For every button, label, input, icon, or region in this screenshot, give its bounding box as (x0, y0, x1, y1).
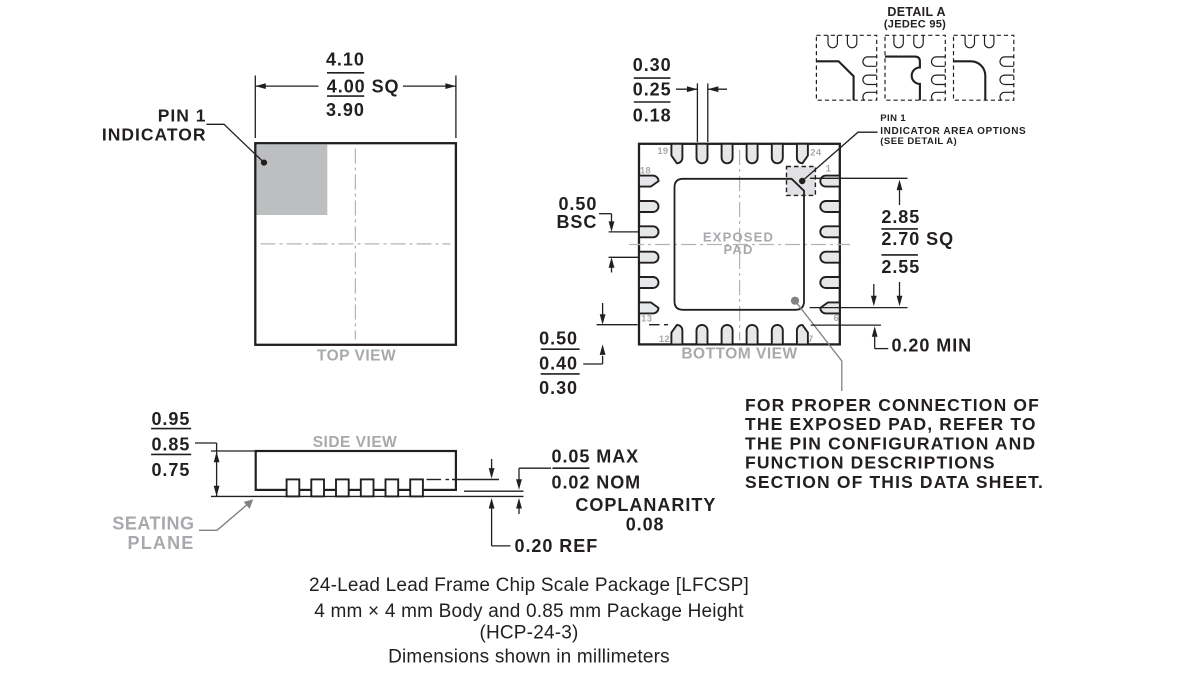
svg-text:3.90: 3.90 (326, 100, 365, 120)
svg-text:18: 18 (640, 165, 651, 176)
svg-text:PIN 1: PIN 1 (880, 113, 906, 124)
svg-text:2.55: 2.55 (881, 257, 920, 277)
svg-text:FOR PROPER CONNECTION OF: FOR PROPER CONNECTION OF (745, 395, 1040, 415)
svg-text:0.20 REF: 0.20 REF (515, 536, 599, 556)
svg-text:24: 24 (810, 148, 822, 159)
svg-text:0.20 MIN: 0.20 MIN (892, 336, 973, 356)
svg-text:THE EXPOSED PAD, REFER TO: THE EXPOSED PAD, REFER TO (745, 414, 1037, 434)
svg-text:SECTION OF THIS DATA SHEET.: SECTION OF THIS DATA SHEET. (745, 472, 1044, 492)
svg-text:BOTTOM VIEW: BOTTOM VIEW (681, 345, 797, 362)
svg-text:6: 6 (834, 313, 840, 324)
svg-text:COPLANARITY: COPLANARITY (575, 495, 716, 515)
svg-text:PAD: PAD (723, 242, 753, 257)
svg-text:0.75: 0.75 (151, 460, 190, 480)
svg-text:0.08: 0.08 (626, 515, 665, 535)
svg-text:0.30: 0.30 (633, 55, 672, 75)
svg-text:0.05 MAX: 0.05 MAX (552, 446, 640, 466)
svg-text:INDICATOR: INDICATOR (102, 125, 207, 145)
svg-text:4.00 SQ: 4.00 SQ (327, 77, 400, 97)
svg-text:0.02 NOM: 0.02 NOM (552, 472, 642, 492)
svg-text:13: 13 (641, 314, 652, 325)
svg-text:7: 7 (808, 334, 814, 345)
svg-text:19: 19 (657, 146, 668, 157)
svg-text:4.10: 4.10 (326, 50, 365, 70)
svg-text:0.85: 0.85 (151, 435, 190, 455)
svg-text:0.18: 0.18 (633, 105, 672, 125)
svg-text:12: 12 (659, 334, 670, 345)
svg-text:2.70 SQ: 2.70 SQ (881, 229, 954, 249)
svg-text:DETAIL A: DETAIL A (887, 5, 945, 19)
svg-text:Dimensions shown in millimeter: Dimensions shown in millimeters (388, 646, 670, 667)
svg-text:SEATING: SEATING (112, 514, 194, 534)
svg-text:2.85: 2.85 (881, 207, 920, 227)
svg-text:PLANE: PLANE (127, 533, 194, 553)
svg-text:0.40: 0.40 (539, 353, 578, 373)
svg-text:(HCP-24-3): (HCP-24-3) (479, 623, 578, 644)
svg-text:1: 1 (826, 164, 832, 175)
svg-text:24-Lead Lead Frame Chip Scale: 24-Lead Lead Frame Chip Scale Package [L… (309, 575, 749, 596)
svg-text:PIN 1: PIN 1 (158, 105, 207, 125)
svg-text:(JEDEC 95): (JEDEC 95) (884, 18, 946, 30)
svg-text:0.25: 0.25 (633, 80, 672, 100)
svg-text:0.50: 0.50 (539, 329, 578, 349)
svg-text:THE PIN CONFIGURATION AND: THE PIN CONFIGURATION AND (745, 433, 1036, 453)
svg-text:0.95: 0.95 (151, 409, 190, 429)
svg-text:(SEE DETAIL A): (SEE DETAIL A) (880, 136, 957, 147)
svg-text:0.30: 0.30 (539, 378, 578, 398)
svg-text:FUNCTION DESCRIPTIONS: FUNCTION DESCRIPTIONS (745, 453, 996, 473)
svg-text:SIDE VIEW: SIDE VIEW (313, 434, 398, 451)
svg-text:4 mm × 4 mm Body and 0.85 mm P: 4 mm × 4 mm Body and 0.85 mm Package Hei… (314, 601, 744, 622)
svg-text:BSC: BSC (556, 212, 597, 232)
svg-text:TOP VIEW: TOP VIEW (317, 347, 396, 364)
